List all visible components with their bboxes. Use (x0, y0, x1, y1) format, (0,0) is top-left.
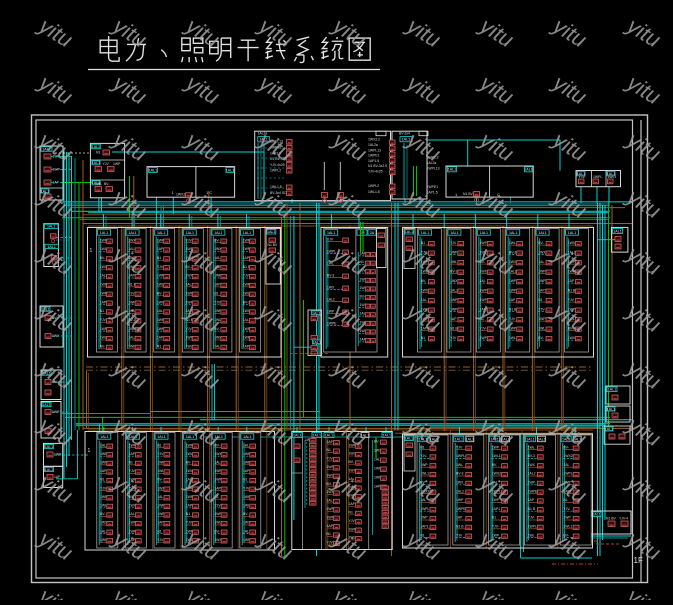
svg-text:YJV: YJV (186, 238, 193, 242)
svg-text:1AL1: 1AL1 (243, 435, 251, 439)
svg-text:YJV-: YJV- (243, 486, 250, 490)
svg-text:N1: N1 (100, 478, 104, 482)
svg-text:1WP: 1WP (450, 298, 458, 302)
svg-text:1WL: 1WL (456, 463, 463, 467)
svg-text:BV-: BV- (421, 279, 426, 283)
svg-text:BV-: BV- (538, 336, 543, 340)
svg-text:YJV: YJV (186, 327, 193, 331)
svg-text:1WP: 1WP (456, 498, 464, 502)
svg-text:1WX2.: 1WX2. (176, 193, 186, 197)
svg-text:YJV-: YJV- (538, 307, 545, 311)
svg-text:1AL: 1AL (327, 499, 333, 503)
svg-text:YJV-: YJV- (214, 504, 221, 508)
svg-text:1WX: 1WX (450, 279, 458, 283)
svg-text:N1 B: N1 B (568, 288, 576, 292)
svg-text:1WL: 1WL (327, 473, 334, 477)
svg-text:1WL: 1WL (509, 241, 516, 245)
svg-text:1AL1: 1AL1 (100, 231, 108, 235)
svg-text:1AL1: 1AL1 (524, 168, 532, 172)
svg-text:1WP: 1WP (563, 516, 571, 520)
svg-text:1AL1: 1AL1 (608, 388, 616, 392)
svg-text:1AP: 1AP (456, 516, 463, 520)
svg-text:N1: N1 (157, 345, 161, 349)
svg-text:1WP: 1WP (509, 279, 517, 283)
svg-text:YJV-: YJV- (420, 454, 427, 458)
svg-text:1: 1 (90, 248, 93, 254)
svg-text:YJV-: YJV- (579, 175, 586, 179)
svg-text:1WP: 1WP (528, 481, 536, 485)
svg-text:1AL1: 1AL1 (45, 445, 53, 449)
svg-text:YJV: YJV (327, 237, 334, 241)
svg-text:1AL1: 1AL1 (568, 231, 576, 235)
svg-text:YJV-: YJV- (157, 538, 164, 542)
svg-text:YJV: YJV (456, 533, 463, 537)
svg-text:1AL: 1AL (563, 463, 569, 467)
svg-text:1AP: 1AP (528, 498, 535, 502)
svg-text:1AP1: 1AP1 (538, 288, 546, 292)
svg-text:1AL1: 1AL1 (226, 168, 234, 172)
svg-text:1: 1 (88, 448, 91, 454)
svg-text:1AL: 1AL (100, 274, 106, 278)
svg-text:1AL1: 1AL1 (466, 437, 474, 441)
svg-text:YJV-: YJV- (157, 452, 164, 456)
svg-text:YJV: YJV (327, 457, 334, 461)
svg-text:1AL1: 1AL1 (537, 437, 545, 441)
svg-text:N1: N1 (129, 461, 133, 465)
svg-text:N1 B: N1 B (528, 507, 536, 511)
svg-text:YJV-: YJV- (480, 326, 487, 330)
svg-text:1WPE1: 1WPE1 (368, 154, 380, 158)
svg-text:1AL1: 1AL1 (607, 407, 615, 411)
svg-text:1WX2: 1WX2 (563, 454, 572, 458)
svg-text:YJV: YJV (450, 336, 457, 340)
svg-text:1AL2: 1AL2 (450, 288, 458, 292)
svg-text:1AL: 1AL (214, 461, 220, 465)
svg-text:1WPL: 1WPL (593, 175, 602, 179)
svg-text:YJV-4x25: YJV-4x25 (368, 170, 383, 174)
svg-text:1AP: 1AP (327, 440, 334, 444)
svg-text:1WL: 1WL (450, 260, 457, 264)
svg-text:1AP1.5: 1AP1.5 (368, 159, 379, 163)
svg-text:1AL1: 1AL1 (312, 311, 320, 315)
svg-text:1AL1: 1AL1 (605, 427, 613, 431)
svg-text:N1: N1 (157, 529, 161, 533)
svg-text:1AL: 1AL (129, 512, 135, 516)
svg-text:1WPL13: 1WPL13 (368, 148, 381, 152)
svg-text:1WPE: 1WPE (456, 507, 466, 511)
svg-text:1WL: 1WL (95, 182, 102, 186)
svg-text:BV-: BV- (100, 256, 105, 260)
svg-text:1AL: 1AL (214, 345, 220, 349)
svg-text:1AL1: 1AL1 (243, 231, 251, 235)
svg-text:1WL: 1WL (509, 336, 516, 340)
svg-text:BV-: BV- (157, 291, 162, 295)
svg-text:1WP: 1WP (538, 279, 546, 283)
svg-text:1AL1: 1AL1 (592, 513, 600, 517)
svg-text:1AL1: 1AL1 (383, 433, 391, 437)
svg-text:1WPE: 1WPE (528, 489, 538, 493)
svg-text:BV-: BV- (374, 439, 379, 443)
svg-text:1WPL: 1WPL (456, 454, 465, 458)
svg-text:1AL1: 1AL1 (421, 231, 429, 235)
svg-text:1AL1: 1AL1 (448, 168, 456, 172)
svg-text:BV-: BV- (360, 295, 365, 299)
svg-text:BV-: BV- (538, 241, 543, 245)
svg-text:1AL2: 1AL2 (528, 472, 536, 476)
svg-text:1AP1: 1AP1 (420, 525, 428, 529)
svg-text:YJV: YJV (450, 241, 457, 245)
svg-text:N1: N1 (186, 512, 190, 516)
svg-text:YJV-: YJV- (100, 486, 107, 490)
svg-text:N1: N1 (100, 309, 104, 313)
svg-text:1AL1: 1AL1 (157, 231, 165, 235)
svg-text:YJV: YJV (103, 162, 110, 166)
svg-text:BV-3: BV-3 (450, 269, 457, 273)
svg-text:N1: N1 (327, 532, 331, 536)
svg-text:N1: N1 (96, 151, 100, 155)
svg-text:BV-3: BV-3 (456, 472, 463, 476)
svg-text:1AP: 1AP (374, 484, 381, 488)
svg-text:2A: 2A (370, 231, 375, 235)
svg-text:BV-3: BV-3 (243, 300, 250, 304)
svg-text:1AP: 1AP (568, 279, 575, 283)
svg-text:1AL: 1AL (480, 279, 486, 283)
svg-text:BV-: BV- (100, 512, 105, 516)
svg-text:1AL1: 1AL1 (450, 231, 458, 235)
svg-text:BV-: BV- (214, 529, 219, 533)
svg-text:1WP: 1WP (113, 162, 121, 166)
svg-text:1AL: 1AL (157, 309, 163, 313)
svg-text:N1: N1 (214, 291, 218, 295)
svg-text:N1: N1 (538, 298, 542, 302)
svg-text:1WPL2: 1WPL2 (368, 184, 379, 188)
svg-text:1WX: 1WX (456, 481, 464, 485)
svg-text:YJV: YJV (456, 445, 463, 449)
svg-text:1AP: 1AP (327, 524, 334, 528)
svg-text:1AL1: 1AL1 (313, 433, 321, 437)
svg-text:YJV: YJV (243, 274, 250, 278)
svg-text:BV-: BV- (349, 460, 354, 464)
svg-text:1AL: 1AL (243, 529, 249, 533)
svg-text:YJV-: YJV- (563, 507, 570, 511)
svg-text:N1: N1 (157, 256, 161, 260)
svg-text:BV-: BV- (104, 182, 109, 186)
svg-text:YJV: YJV (349, 519, 356, 523)
svg-text:N1: N1 (421, 336, 425, 340)
svg-text:BV-: BV- (243, 512, 248, 516)
svg-text:1AL: 1AL (157, 495, 163, 499)
svg-text:1AL1: 1AL1 (538, 231, 546, 235)
svg-text:1AL1: 1AL1 (509, 231, 517, 235)
svg-text:N1: N1 (157, 443, 161, 447)
svg-text:BV-: BV- (186, 461, 191, 465)
svg-text:1WPL13: 1WPL13 (427, 167, 440, 171)
svg-text:1AL: 1AL (374, 457, 380, 461)
svg-text:1WPL2: 1WPL2 (270, 169, 281, 173)
svg-text:1AL1: 1AL1 (613, 229, 621, 233)
svg-text:1AP: 1AP (450, 317, 457, 321)
svg-text:1AL1: 1AL1 (42, 403, 50, 407)
svg-text:1WPL: 1WPL (528, 525, 537, 529)
svg-text:1WX: 1WX (327, 285, 335, 289)
svg-text:1WP: 1WP (420, 516, 428, 520)
svg-text:N1: N1 (243, 478, 247, 482)
svg-text:1AL1: 1AL1 (480, 231, 488, 235)
svg-text:N1 B: N1 B (450, 326, 458, 330)
svg-text:1AL1: 1AL1 (149, 168, 157, 172)
svg-text:1AP: 1AP (509, 298, 516, 302)
svg-text:YJV-: YJV- (186, 521, 193, 525)
svg-text:1AL1: 1AL1 (327, 231, 335, 235)
svg-text:1WL: 1WL (349, 452, 356, 456)
svg-text:1AL1: 1AL1 (128, 231, 136, 235)
svg-text:YJV-: YJV- (129, 469, 136, 473)
svg-text:1AL1: 1AL1 (405, 230, 413, 234)
svg-text:YJV: YJV (528, 516, 535, 520)
svg-text:1AL1: 1AL1 (455, 437, 463, 441)
svg-text:YJV: YJV (128, 291, 135, 295)
svg-text:N1 BV: N1 BV (463, 192, 474, 196)
svg-text:1AL1: 1AL1 (47, 225, 55, 229)
svg-text:N1 BV-3x2.5: N1 BV-3x2.5 (368, 164, 387, 168)
svg-text:1AL2: 1AL2 (327, 297, 335, 301)
svg-text:1WP: 1WP (480, 336, 488, 340)
svg-text:1AL1: 1AL1 (186, 231, 194, 235)
svg-text:1AL: 1AL (100, 443, 106, 447)
svg-text:1WX2.2: 1WX2.2 (368, 138, 380, 142)
svg-text:1WP: 1WP (538, 317, 546, 321)
svg-text:1AL1: 1AL1 (267, 230, 275, 234)
svg-text:1AL: 1AL (100, 529, 106, 533)
svg-text:1AP: 1AP (243, 256, 250, 260)
svg-text:1AL: 1AL (243, 443, 249, 447)
svg-text:1AL1: 1AL1 (100, 435, 108, 439)
svg-text:YJV-: YJV- (157, 265, 164, 269)
svg-text:YJV-4: YJV-4 (619, 517, 628, 521)
svg-text:1AL1: 1AL1 (92, 145, 100, 149)
svg-text:BV-: BV- (100, 345, 105, 349)
svg-text:1WL: 1WL (528, 533, 535, 537)
svg-text:1WX: 1WX (528, 463, 536, 467)
svg-text:BV-: BV- (157, 478, 162, 482)
svg-text:BV-3: BV-3 (528, 454, 535, 458)
svg-text:1WL: 1WL (243, 291, 250, 295)
svg-text:N1: N1 (492, 516, 496, 520)
svg-text:BV-: BV- (492, 463, 497, 467)
svg-text:N1: N1 (327, 448, 331, 452)
svg-text:1WX: 1WX (568, 336, 576, 340)
svg-text:N1: N1 (349, 511, 353, 515)
svg-text:1WPE1: 1WPE1 (427, 185, 439, 189)
svg-text:1WL1: 1WL1 (608, 175, 617, 179)
svg-text:1WL: 1WL (528, 445, 535, 449)
svg-text:1WL1.8: 1WL1.8 (368, 190, 380, 194)
svg-text:1WL: 1WL (186, 345, 193, 349)
svg-text:1WL1: 1WL1 (492, 454, 501, 458)
svg-text:BV-3x4: BV-3x4 (399, 132, 410, 136)
svg-text:N1 B: N1 B (456, 525, 464, 529)
svg-text:BV-: BV- (214, 238, 219, 242)
svg-text:YJV-: YJV- (100, 318, 107, 322)
svg-text:1AP: 1AP (243, 345, 250, 349)
svg-text:1WP: 1WP (54, 452, 62, 456)
svg-text:YJV-: YJV- (214, 300, 221, 304)
svg-text:1AL1: 1AL1 (92, 161, 100, 165)
svg-text:1AP1: 1AP1 (492, 507, 500, 511)
svg-text:N1 BV: N1 BV (606, 517, 617, 521)
svg-text:1WP: 1WP (420, 463, 428, 467)
svg-text:BV-: BV- (563, 445, 568, 449)
svg-text:1AL1: 1AL1 (313, 340, 321, 344)
svg-text:1AL1: 1AL1 (157, 435, 165, 439)
svg-text:1AL1: 1AL1 (526, 437, 534, 441)
svg-text:1WPL: 1WPL (420, 507, 429, 511)
svg-text:1AL1: 1AL1 (214, 231, 222, 235)
svg-text:1AL2: 1AL2 (456, 489, 464, 493)
svg-text:BV-3: BV-3 (327, 273, 334, 277)
svg-text:1AL: 1AL (538, 260, 544, 264)
